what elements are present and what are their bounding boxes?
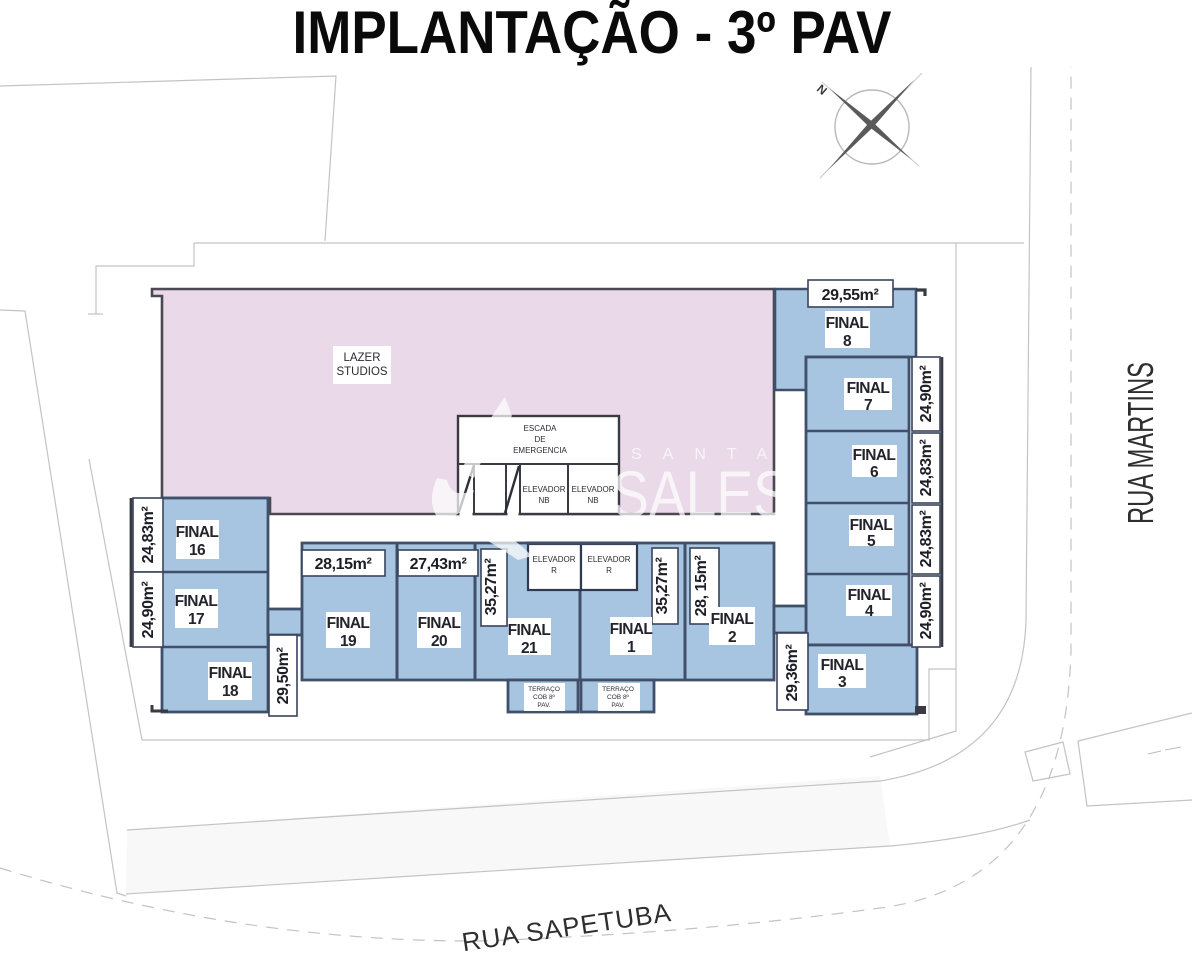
svg-text:29,55m²: 29,55m² (822, 287, 879, 304)
svg-text:FINAL: FINAL (711, 611, 754, 628)
svg-text:FINAL: FINAL (327, 615, 370, 632)
svg-text:27,43m²: 27,43m² (410, 556, 467, 573)
svg-text:FINAL: FINAL (209, 665, 252, 682)
svg-text:NB: NB (538, 496, 549, 505)
svg-text:FINAL: FINAL (847, 380, 890, 397)
svg-text:SALES: SALES (612, 457, 790, 531)
svg-text:COB 8º: COB 8º (607, 694, 630, 701)
svg-text:FINAL: FINAL (418, 615, 461, 632)
svg-text:PAV.: PAV. (537, 702, 550, 709)
svg-text:ESCADA: ESCADA (524, 424, 558, 433)
svg-text:18: 18 (222, 683, 239, 700)
svg-text:ELEVADOR: ELEVADOR (533, 555, 576, 564)
svg-text:24,83m²: 24,83m² (140, 507, 157, 564)
svg-text:FINAL: FINAL (610, 621, 653, 638)
svg-text:3: 3 (838, 674, 847, 691)
svg-text:5: 5 (867, 533, 876, 550)
svg-text:24,90m²: 24,90m² (140, 582, 157, 639)
svg-text:R: R (606, 566, 612, 575)
svg-text:IMPLANTAÇÃO - 3º PAV: IMPLANTAÇÃO - 3º PAV (293, 0, 892, 66)
svg-text:COB 8º: COB 8º (533, 694, 556, 701)
svg-text:17: 17 (188, 611, 204, 628)
svg-text:PAV.: PAV. (611, 702, 624, 709)
svg-text:FINAL: FINAL (508, 622, 551, 639)
svg-text:24,83m²: 24,83m² (918, 440, 935, 497)
svg-text:24,90m²: 24,90m² (918, 366, 935, 423)
svg-text:4: 4 (865, 603, 874, 620)
svg-text:FINAL: FINAL (853, 447, 896, 464)
svg-text:FINAL: FINAL (176, 524, 219, 541)
svg-text:TERRAÇO: TERRAÇO (602, 686, 634, 693)
svg-text:29,50m²: 29,50m² (275, 648, 292, 705)
svg-text:FINAL: FINAL (821, 657, 864, 674)
svg-text:FINAL: FINAL (848, 587, 891, 604)
svg-text:DE: DE (534, 435, 545, 444)
svg-text:35,27m²: 35,27m² (654, 558, 671, 615)
svg-text:R: R (551, 566, 557, 575)
svg-text:LAZER: LAZER (343, 352, 380, 364)
svg-text:FINAL: FINAL (826, 315, 869, 332)
svg-text:24,83m²: 24,83m² (918, 511, 935, 568)
svg-text:STUDIOS: STUDIOS (336, 366, 387, 378)
svg-text:2: 2 (728, 629, 736, 646)
svg-text:8: 8 (843, 333, 852, 350)
svg-text:NB: NB (587, 496, 598, 505)
svg-text:EMERGENCIA: EMERGENCIA (513, 446, 567, 455)
svg-text:RUA MARTINS: RUA MARTINS (1120, 362, 1161, 524)
svg-text:1: 1 (627, 639, 636, 656)
svg-text:24,90m²: 24,90m² (918, 583, 935, 640)
svg-text:29,36m²: 29,36m² (784, 645, 801, 702)
svg-text:16: 16 (189, 542, 206, 559)
svg-text:ELEVADOR: ELEVADOR (572, 485, 615, 494)
svg-text:19: 19 (340, 633, 357, 650)
svg-text:20: 20 (431, 633, 447, 650)
svg-text:TERRAÇO: TERRAÇO (528, 686, 560, 693)
svg-text:35,27m²: 35,27m² (483, 559, 500, 616)
svg-text:21: 21 (521, 640, 538, 657)
svg-text:28, 15m²: 28, 15m² (693, 556, 710, 617)
svg-text:6: 6 (870, 464, 879, 481)
svg-text:ELEVADOR: ELEVADOR (523, 485, 566, 494)
svg-text:FINAL: FINAL (850, 517, 893, 534)
svg-text:28,15m²: 28,15m² (315, 556, 372, 573)
svg-text:ELEVADOR: ELEVADOR (588, 555, 631, 564)
svg-text:FINAL: FINAL (175, 593, 218, 610)
svg-text:7: 7 (864, 397, 872, 414)
